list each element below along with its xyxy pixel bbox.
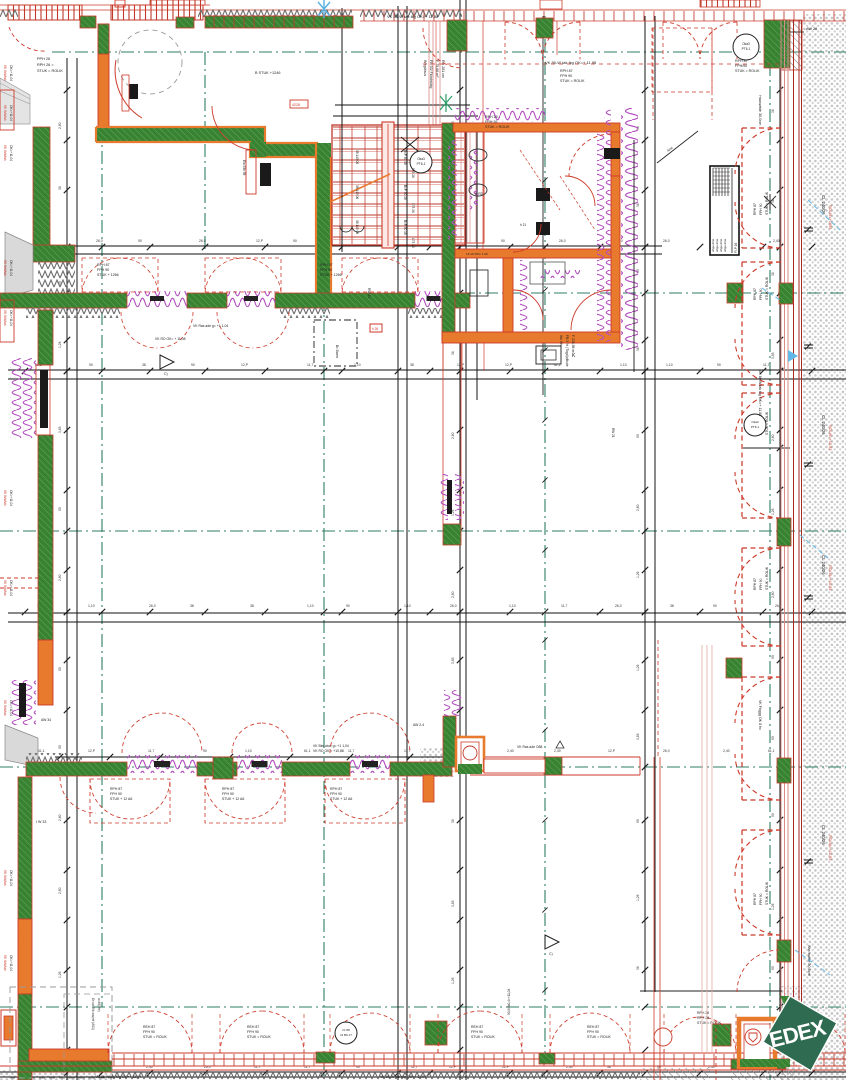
svg-text:4226: 4226 xyxy=(292,103,300,107)
svg-text:26,0: 26,0 xyxy=(559,239,566,243)
svg-text:STUK = ROLIK: STUK = ROLIK xyxy=(247,1035,271,1039)
svg-text:STUK = ROLIK: STUK = ROLIK xyxy=(471,1035,495,1039)
svg-text:CL 240/26: CL 240/26 xyxy=(821,825,826,845)
svg-text:STUK = ROLIK: STUK = ROLIK xyxy=(765,566,769,590)
svg-text:FPH 90: FPH 90 xyxy=(759,288,763,300)
svg-text:3,85: 3,85 xyxy=(451,900,455,907)
svg-text:1,26: 1,26 xyxy=(58,971,62,978)
svg-text:1,26: 1,26 xyxy=(451,977,455,984)
svg-text:VK 86-W tak tkg OK=+ 11,88: VK 86-W tak tkg OK=+ 11,88 xyxy=(387,14,439,19)
svg-text:FPH 90: FPH 90 xyxy=(320,268,332,272)
svg-text:38: 38 xyxy=(250,604,254,608)
svg-text:REH 87: REH 87 xyxy=(587,1025,599,1029)
svg-text:38: 38 xyxy=(771,109,775,113)
svg-text:1,10: 1,10 xyxy=(88,604,95,608)
svg-text:FPH 90: FPH 90 xyxy=(97,268,109,272)
svg-text:26,0: 26,0 xyxy=(615,604,622,608)
svg-text:ROLIK=+10,93: ROLIK=+10,93 xyxy=(828,565,832,590)
svg-text:CL 240/26: CL 240/26 xyxy=(821,415,826,435)
svg-text:VK 8xWtak: VK 8xWtak xyxy=(3,700,7,716)
svg-text:FPH 90: FPH 90 xyxy=(759,893,763,905)
svg-text:RPH 87: RPH 87 xyxy=(320,263,333,267)
svg-text:VK 8xWtak: VK 8xWtak xyxy=(3,260,7,276)
svg-text:2,60: 2,60 xyxy=(636,504,640,511)
svg-text:STUK = ROLIK: STUK = ROLIK xyxy=(765,276,769,300)
svg-text:90: 90 xyxy=(771,966,775,970)
svg-text:VK 8xWtak: VK 8xWtak xyxy=(3,65,7,81)
svg-text:Wegdfaus: Wegdfaus xyxy=(423,60,427,76)
svg-text:90: 90 xyxy=(203,749,207,753)
svg-text:VK 86-W tak tkg OK=+ 11,04: VK 86-W tak tkg OK=+ 11,04 xyxy=(380,1075,426,1079)
svg-text:B STUK +1246: B STUK +1246 xyxy=(255,71,280,75)
svg-text:2,60: 2,60 xyxy=(58,574,62,581)
svg-text:OK=+11,04: OK=+11,04 xyxy=(9,310,13,326)
svg-text:RPH 87: RPH 87 xyxy=(753,288,757,300)
svg-text:11,7: 11,7 xyxy=(348,749,354,753)
svg-text:FI.P 26: FI.P 26 xyxy=(734,243,738,253)
svg-text:C): C) xyxy=(164,372,168,376)
svg-text:3,85: 3,85 xyxy=(771,352,775,359)
svg-text:12,P: 12,P xyxy=(505,363,513,367)
svg-text:STUK = ROLIK: STUK = ROLIK xyxy=(37,69,63,73)
svg-text:1,10: 1,10 xyxy=(404,604,411,608)
svg-text:38: 38 xyxy=(58,186,62,190)
svg-text:K RD: K RD xyxy=(475,192,484,196)
svg-text:90: 90 xyxy=(771,736,775,740)
svg-text:90: 90 xyxy=(501,239,505,243)
svg-text:OK=+11,04: OK=+11,04 xyxy=(9,870,13,886)
svg-text:b 26: b 26 xyxy=(372,327,378,331)
svg-text:1,10: 1,10 xyxy=(620,363,627,367)
svg-text:STUK = ROLIK: STUK = ROLIK xyxy=(697,1021,721,1025)
svg-text:11,7: 11,7 xyxy=(148,749,154,753)
svg-text:STUK = ROLIK: STUK = ROLIK xyxy=(587,1035,611,1039)
svg-text:STUK + 12 A6: STUK + 12 A6 xyxy=(330,797,352,801)
svg-text:26,0: 26,0 xyxy=(663,239,670,243)
svg-text:h 21: h 21 xyxy=(520,223,526,227)
svg-text:AW 34: AW 34 xyxy=(41,718,51,722)
svg-text:RPH 87: RPH 87 xyxy=(560,69,573,73)
svg-text:RW 21: RW 21 xyxy=(367,288,371,298)
svg-text:Wo Ws: Wo Ws xyxy=(559,335,563,346)
svg-text:173 26: 173 26 xyxy=(411,168,415,178)
svg-text:90: 90 xyxy=(771,655,775,659)
svg-text:38: 38 xyxy=(636,966,640,970)
svg-text:90: 90 xyxy=(636,819,640,823)
svg-text:I W 33: I W 33 xyxy=(36,820,46,824)
svg-text:38 145 06: 38 145 06 xyxy=(355,150,359,164)
svg-text:61,1: 61,1 xyxy=(768,749,775,753)
svg-text:VK 86-W tak tkg OK=+ 11,88: VK 86-W tak tkg OK=+ 11,88 xyxy=(758,370,762,416)
svg-text:FPH 90: FPH 90 xyxy=(759,203,763,215)
svg-text:90: 90 xyxy=(717,363,721,367)
svg-text:FPH 90: FPH 90 xyxy=(110,792,122,796)
svg-text:VK RO OK = +10,88: VK RO OK = +10,88 xyxy=(313,749,344,753)
svg-text:VK Ras ade O88: VK Ras ade O88 xyxy=(517,745,543,749)
svg-text:90: 90 xyxy=(138,239,142,243)
svg-text:VK 8xWtak: VK 8xWtak xyxy=(3,490,7,506)
svg-text:FPH 90: FPH 90 xyxy=(759,578,763,590)
svg-text:Oka3: Oka3 xyxy=(742,42,750,46)
svg-text:REH 87: REH 87 xyxy=(471,1025,483,1029)
svg-text:RPH 26 =: RPH 26 = xyxy=(37,63,54,67)
svg-text:Or 88: Or 88 xyxy=(342,1028,350,1032)
svg-text:2,60: 2,60 xyxy=(451,591,455,598)
svg-text:38: 38 xyxy=(451,351,455,355)
svg-text:38: 38 xyxy=(451,819,455,823)
svg-text:12,P: 12,P xyxy=(241,363,249,367)
svg-text:12,P: 12,P xyxy=(608,749,616,753)
svg-text:RPH 87: RPH 87 xyxy=(753,578,757,590)
svg-text:C): C) xyxy=(549,952,553,956)
svg-text:2,60: 2,60 xyxy=(771,434,775,441)
svg-text:12,P: 12,P xyxy=(88,749,96,753)
svg-text:1,26: 1,26 xyxy=(636,894,640,901)
svg-text:11 B9 17: 11 B9 17 xyxy=(340,1033,352,1037)
svg-text:RW 21: RW 21 xyxy=(611,428,615,438)
svg-text:90: 90 xyxy=(89,363,93,367)
svg-text:2,40: 2,40 xyxy=(723,749,730,753)
svg-text:2,60: 2,60 xyxy=(58,814,62,821)
svg-text:Bc Daem: Bc Daem xyxy=(335,345,339,358)
svg-text:RPH 87: RPH 87 xyxy=(97,263,110,267)
svg-text:PPH 26: PPH 26 xyxy=(37,57,50,61)
svg-text:16 10 PFC 1 06: 16 10 PFC 1 06 xyxy=(466,252,488,256)
svg-text:OK=+11,04: OK=+11,04 xyxy=(9,260,13,276)
svg-text:38: 38 xyxy=(142,363,146,367)
svg-text:1,10: 1,10 xyxy=(666,363,673,367)
svg-text:F 238,98 m²: F 238,98 m² xyxy=(571,335,575,354)
svg-text:173 26: 173 26 xyxy=(411,238,415,248)
svg-text:PT6-1: PT6-1 xyxy=(742,47,751,51)
svg-text:12,P: 12,P xyxy=(256,239,264,243)
svg-text:VK 8xWtak: VK 8xWtak xyxy=(3,105,7,121)
svg-text:STUK = ROLIK: STUK = ROLIK xyxy=(735,69,760,73)
svg-text:OK=+11,04: OK=+11,04 xyxy=(9,490,13,506)
svg-text:PT6-1: PT6-1 xyxy=(417,162,426,166)
svg-text:BcP 30 18: BcP 30 18 xyxy=(403,185,407,200)
svg-text:Dr=at Rib wa(ref (A01): Dr=at Rib wa(ref (A01) xyxy=(91,998,95,1030)
svg-text:a=46(5te): a=46(5te) xyxy=(97,998,101,1012)
svg-text:38 145 06: 38 145 06 xyxy=(355,185,359,199)
svg-text:90: 90 xyxy=(346,604,350,608)
svg-text:173 26: 173 26 xyxy=(411,203,415,213)
svg-text:1,10: 1,10 xyxy=(245,749,252,753)
svg-text:RPH 87: RPH 87 xyxy=(753,893,757,905)
svg-text:26,0: 26,0 xyxy=(450,604,457,608)
svg-text:FPH 90: FPH 90 xyxy=(471,1030,483,1034)
svg-text:OK=+11,04: OK=+11,04 xyxy=(9,105,13,121)
svg-text:ROLIK=+10,93: ROLIK=+10,93 xyxy=(828,425,832,450)
svg-text:2,40: 2,40 xyxy=(554,749,561,753)
svg-text:VK Ras ade g= +1 1,04: VK Ras ade g= +1 1,04 xyxy=(193,324,228,328)
svg-text:61,1: 61,1 xyxy=(304,749,311,753)
svg-text:1,10: 1,10 xyxy=(509,604,516,608)
svg-text:OK=+11,04: OK=+11,04 xyxy=(9,955,13,971)
svg-text:26,0: 26,0 xyxy=(663,749,670,753)
svg-text:OK=+11,04: OK=+11,04 xyxy=(9,145,13,161)
svg-text:RPH 26: RPH 26 xyxy=(697,1011,709,1015)
svg-text:FPH 90: FPH 90 xyxy=(222,792,234,796)
svg-text:BcP 30 18: BcP 30 18 xyxy=(403,150,407,165)
svg-text:2,60: 2,60 xyxy=(58,887,62,894)
svg-text:STUK = ROLIK: STUK = ROLIK xyxy=(485,125,510,129)
svg-text:1,10: 1,10 xyxy=(307,604,314,608)
svg-text:26,0: 26,0 xyxy=(199,239,206,243)
svg-text:STUK + 12 A6: STUK + 12 A6 xyxy=(222,797,244,801)
svg-text:FPH 90: FPH 90 xyxy=(587,1030,599,1034)
svg-text:STUK + 12 A6: STUK + 12 A6 xyxy=(110,797,132,801)
svg-text:2,40: 2,40 xyxy=(773,239,780,243)
svg-text:61,1: 61,1 xyxy=(38,749,45,753)
svg-text:90: 90 xyxy=(293,239,297,243)
svg-text:Ela 93b 98: Ela 93b 98 xyxy=(242,160,246,175)
svg-text:PT6-1: PT6-1 xyxy=(751,425,760,429)
svg-text:Hauswtde 30,0cm: Hauswtde 30,0cm xyxy=(758,95,762,125)
svg-text:STUK = ROLIK: STUK = ROLIK xyxy=(765,881,769,905)
svg-text:FPH/90: FPH/90 xyxy=(735,64,747,68)
svg-text:90: 90 xyxy=(58,745,62,749)
svg-text:38: 38 xyxy=(670,604,674,608)
svg-text:90: 90 xyxy=(58,507,62,511)
svg-text:90: 90 xyxy=(771,813,775,817)
svg-text:2,40: 2,40 xyxy=(507,749,514,753)
svg-text:FPH 90: FPH 90 xyxy=(330,792,342,796)
svg-text:REH 87: REH 87 xyxy=(143,1025,155,1029)
svg-text:90: 90 xyxy=(58,667,62,671)
svg-text:RPH 87: RPH 87 xyxy=(330,787,342,791)
svg-text:F 75,66 m²: F 75,66 m² xyxy=(435,60,439,78)
svg-text:RPH 26: RPH 26 xyxy=(485,115,498,119)
svg-text:11,7: 11,7 xyxy=(763,363,769,367)
svg-text:VK 8xWtak: VK 8xWtak xyxy=(3,870,7,886)
svg-text:1,26: 1,26 xyxy=(58,341,62,348)
svg-text:VK 86-W tak tkg OK=+ 11,04: VK 86-W tak tkg OK=+ 11,04 xyxy=(95,1075,141,1079)
svg-text:26,0: 26,0 xyxy=(149,604,156,608)
svg-text:38: 38 xyxy=(410,363,414,367)
svg-text:RPH 87: RPH 87 xyxy=(222,787,234,791)
svg-text:1,26: 1,26 xyxy=(771,903,775,910)
svg-text:90: 90 xyxy=(636,434,640,438)
svg-text:BcP 30 18: BcP 30 18 xyxy=(403,220,407,235)
svg-text:STUK = ROLIK: STUK = ROLIK xyxy=(143,1035,167,1039)
svg-text:STUK + 1266: STUK + 1266 xyxy=(320,273,342,277)
svg-text:VK 8xWtak: VK 8xWtak xyxy=(3,955,7,971)
svg-text:90: 90 xyxy=(191,363,195,367)
svg-text:38: 38 xyxy=(190,604,194,608)
svg-text:REH 87: REH 87 xyxy=(247,1025,259,1029)
svg-text:OK=+11,04: OK=+11,04 xyxy=(9,700,13,716)
svg-text:1,26: 1,26 xyxy=(636,664,640,671)
svg-text:38: 38 xyxy=(771,272,775,276)
svg-text:FPH 90: FPH 90 xyxy=(560,74,572,78)
svg-text:VK 8xWtak: VK 8xWtak xyxy=(3,145,7,161)
svg-text:2,60: 2,60 xyxy=(451,432,455,439)
svg-text:RPH 26: RPH 26 xyxy=(697,1016,709,1020)
svg-text:RH 281 cm: RH 281 cm xyxy=(441,60,445,78)
svg-text:FPH 90: FPH 90 xyxy=(247,1030,259,1034)
svg-text:VK Fbggg OK 8 hc: VK Fbggg OK 8 hc xyxy=(758,700,762,730)
svg-text:ahga dme: ahga dme xyxy=(723,238,727,252)
svg-text:CL 240/26: CL 240/26 xyxy=(821,555,826,575)
svg-text:ROLIK=+10,93: ROLIK=+10,93 xyxy=(828,835,832,860)
svg-text:VK 8xWtak: VK 8xWtak xyxy=(3,310,7,326)
svg-text:11,7: 11,7 xyxy=(561,604,567,608)
svg-text:FRH 26: FRH 26 xyxy=(485,120,497,124)
svg-text:Oka3: Oka3 xyxy=(417,157,425,161)
svg-text:RPH 87: RPH 87 xyxy=(110,787,122,791)
svg-text:ROLIK=+1093: ROLIK=+1093 xyxy=(828,205,832,229)
svg-text:AW 26: AW 26 xyxy=(806,27,817,31)
svg-text:3,85: 3,85 xyxy=(58,426,62,433)
svg-text:11,7: 11,7 xyxy=(307,363,313,367)
svg-text:38 145 06: 38 145 06 xyxy=(355,220,359,234)
svg-text:1,26: 1,26 xyxy=(771,508,775,515)
svg-text:90,9/3x0,4=+11,04: 90,9/3x0,4=+11,04 xyxy=(507,988,511,1015)
svg-text:26,0: 26,0 xyxy=(96,239,103,243)
svg-text:3,85: 3,85 xyxy=(636,733,640,740)
svg-text:1,26: 1,26 xyxy=(636,571,640,578)
svg-text:FB 3 % (Tkgd)aBcde: FB 3 % (Tkgd)aBcde xyxy=(565,335,569,367)
svg-text:2,60: 2,60 xyxy=(771,591,775,598)
svg-text:90: 90 xyxy=(713,604,717,608)
svg-text:2,60: 2,60 xyxy=(58,122,62,129)
svg-text:STUK + 1266: STUK + 1266 xyxy=(97,273,119,277)
svg-text:VK RO OK= + 11,08: VK RO OK= + 11,08 xyxy=(155,337,186,341)
svg-text:STUK = ROLIK: STUK = ROLIK xyxy=(560,79,585,83)
svg-text:OK=+11,04: OK=+11,04 xyxy=(9,65,13,81)
svg-text:3,85: 3,85 xyxy=(451,657,455,664)
svg-text:FPH 90: FPH 90 xyxy=(143,1030,155,1034)
svg-text:AW 2-4: AW 2-4 xyxy=(413,723,424,727)
svg-text:Oka3: Oka3 xyxy=(751,420,759,424)
svg-text:RPH 87: RPH 87 xyxy=(753,203,757,215)
